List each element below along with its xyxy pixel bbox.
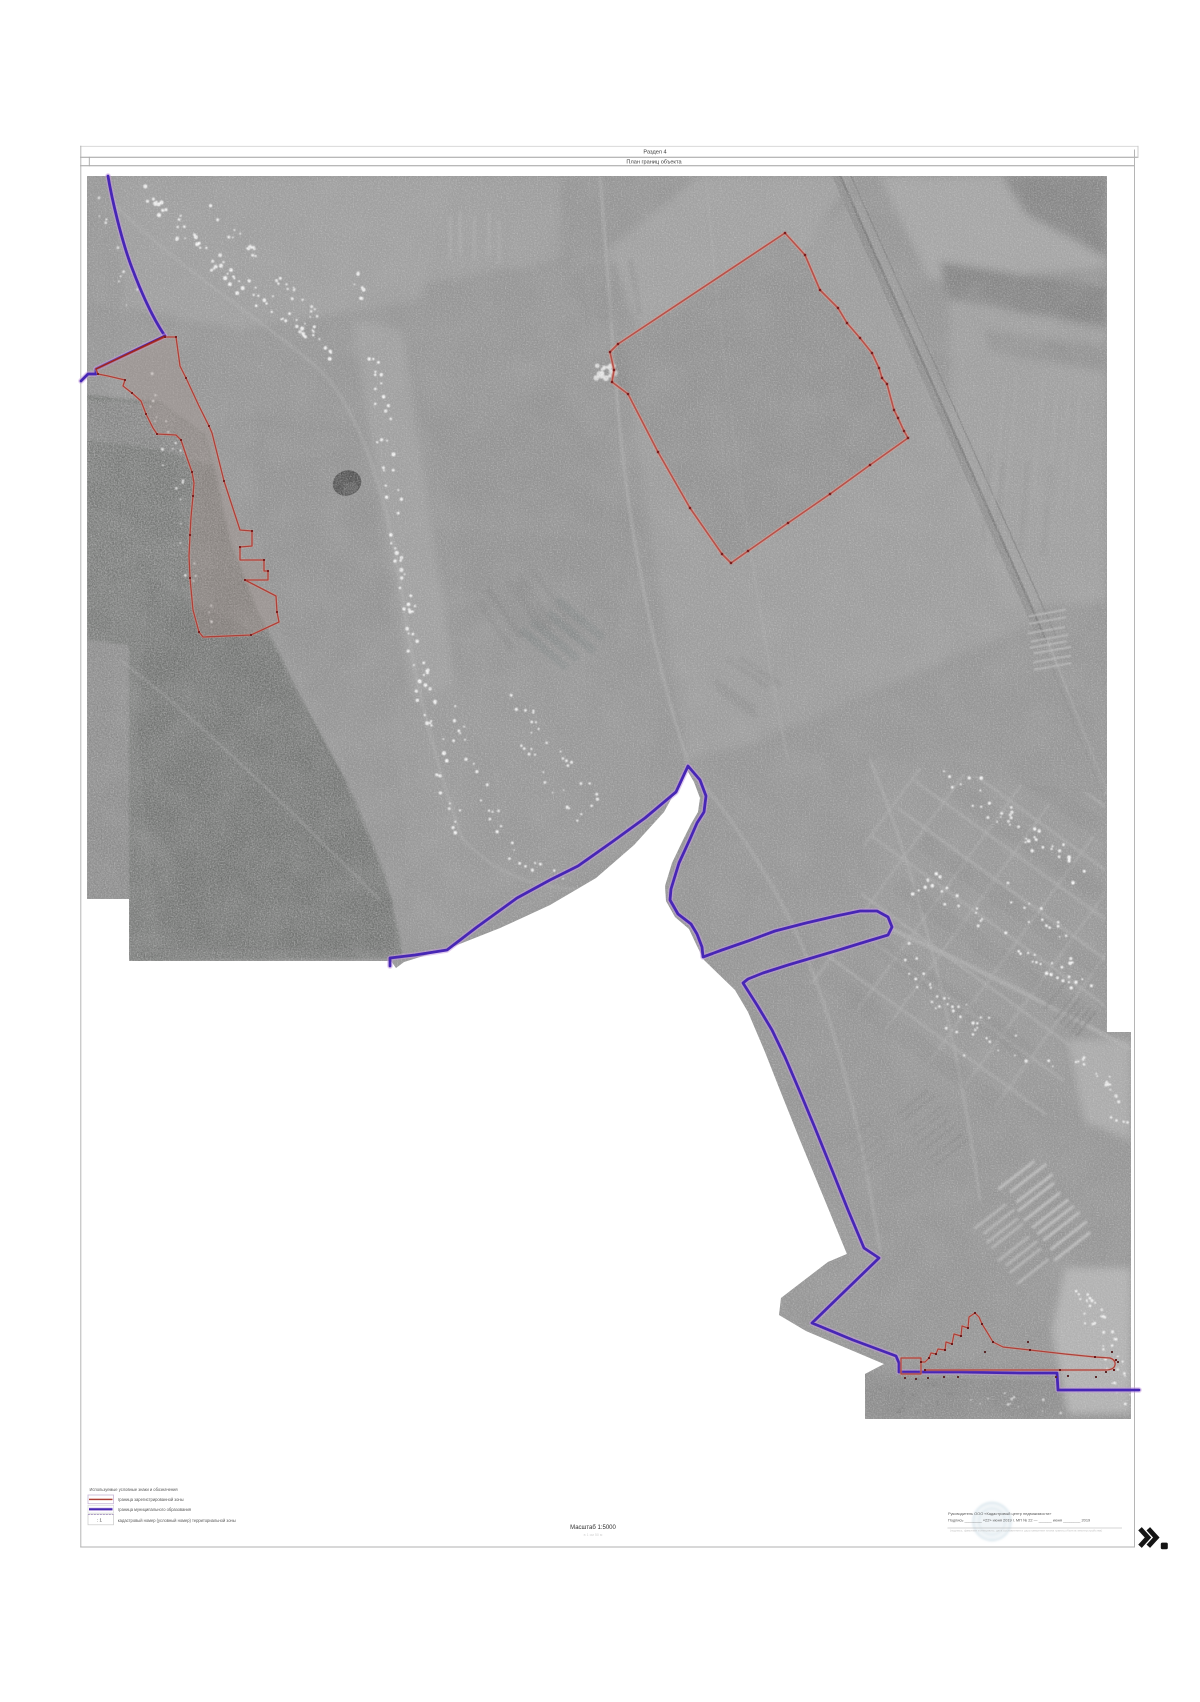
svg-text:граница муниципального образов: граница муниципального образования <box>118 1507 191 1512</box>
svg-text:Руководитель ООО «Кадастровый: Руководитель ООО «Кадастровый центр недв… <box>948 1511 1051 1516</box>
svg-text:Подпись ________ «22» июня 201: Подпись ________ «22» июня 2019 г. МП № … <box>948 1518 1090 1523</box>
svg-text:граница зарегистрированной зон: граница зарегистрированной зоны <box>118 1497 184 1502</box>
svg-text:Используемые условные знаки и: Используемые условные знаки и обозначени… <box>90 1487 178 1492</box>
svg-text:в 1 см 50 м: в 1 см 50 м <box>584 1533 603 1537</box>
svg-text:Раздел 4: Раздел 4 <box>643 150 666 156</box>
svg-text:Масштаб 1:5000: Масштаб 1:5000 <box>570 1525 616 1531</box>
svg-text:План границ объекта: План границ объекта <box>626 159 682 165</box>
svg-text:(подпись, фамилия и инициалы,: (подпись, фамилия и инициалы, дата соста… <box>950 1529 1102 1533</box>
svg-text:: 1: : 1 <box>97 1518 102 1523</box>
svg-text:кадастровый номер (условный но: кадастровый номер (условный номер) терри… <box>118 1518 236 1523</box>
